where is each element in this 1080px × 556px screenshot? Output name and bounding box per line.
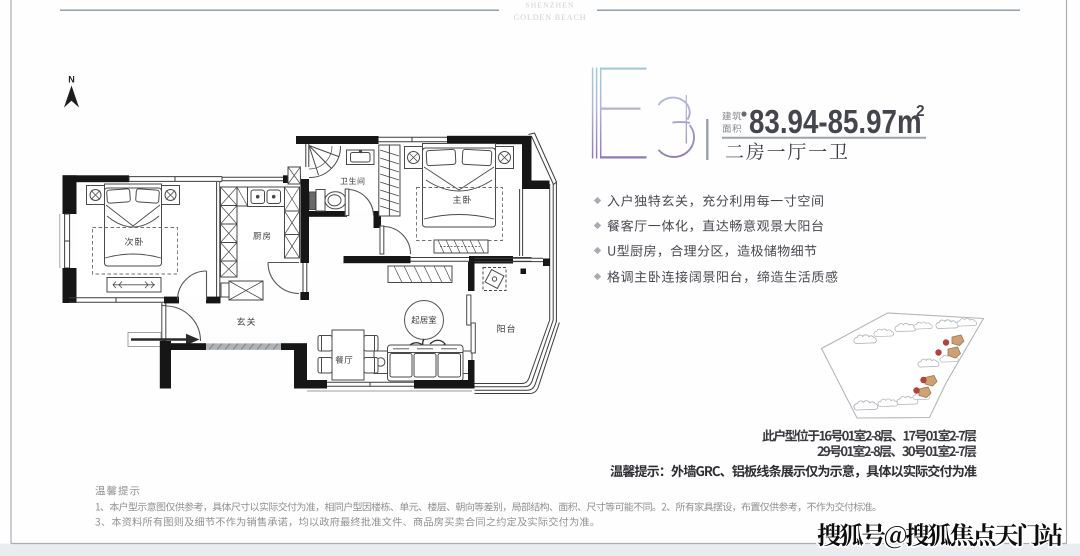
- svg-text:GOLDEN BEACH: GOLDEN BEACH: [514, 13, 587, 22]
- svg-text:N: N: [68, 75, 75, 85]
- svg-text:83.94-85.97m: 83.94-85.97m: [749, 104, 922, 141]
- svg-text:2: 2: [916, 103, 925, 120]
- svg-text:SHENZHEN: SHENZHEN: [525, 1, 574, 10]
